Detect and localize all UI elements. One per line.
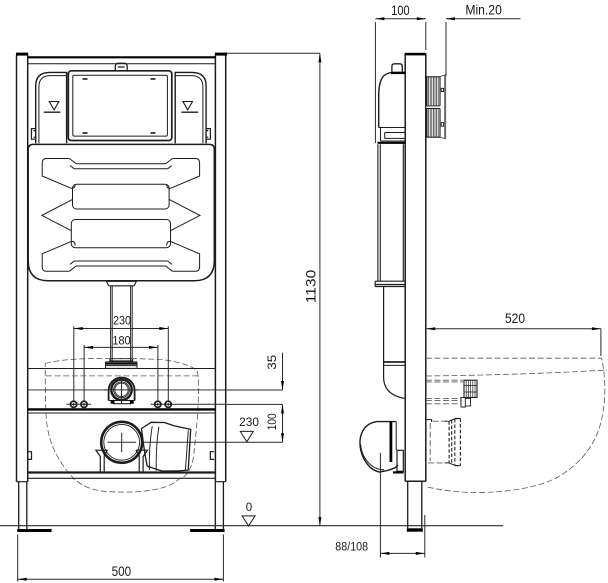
svg-text:100: 100 bbox=[391, 2, 410, 18]
svg-text:520: 520 bbox=[505, 310, 525, 326]
svg-text:100: 100 bbox=[267, 413, 279, 430]
svg-text:230: 230 bbox=[239, 417, 259, 429]
svg-text:500: 500 bbox=[112, 563, 132, 579]
svg-text:Min.20: Min.20 bbox=[465, 1, 502, 17]
svg-text:180: 180 bbox=[112, 336, 130, 348]
svg-text:0: 0 bbox=[246, 502, 252, 514]
svg-text:88/108: 88/108 bbox=[335, 541, 368, 553]
svg-text:35: 35 bbox=[267, 355, 279, 370]
svg-text:1130: 1130 bbox=[303, 270, 319, 304]
svg-text:230: 230 bbox=[113, 316, 131, 328]
